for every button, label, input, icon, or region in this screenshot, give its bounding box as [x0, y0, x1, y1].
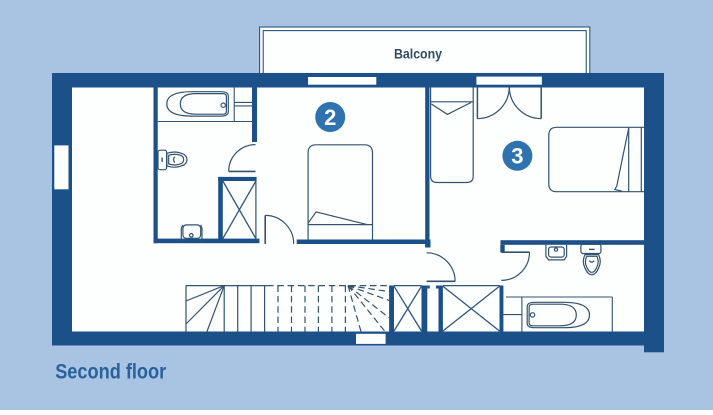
svg-text:Balcony: Balcony — [394, 46, 442, 62]
svg-text:2: 2 — [324, 105, 336, 130]
svg-text:Second floor: Second floor — [55, 360, 167, 384]
svg-text:3: 3 — [511, 144, 523, 169]
